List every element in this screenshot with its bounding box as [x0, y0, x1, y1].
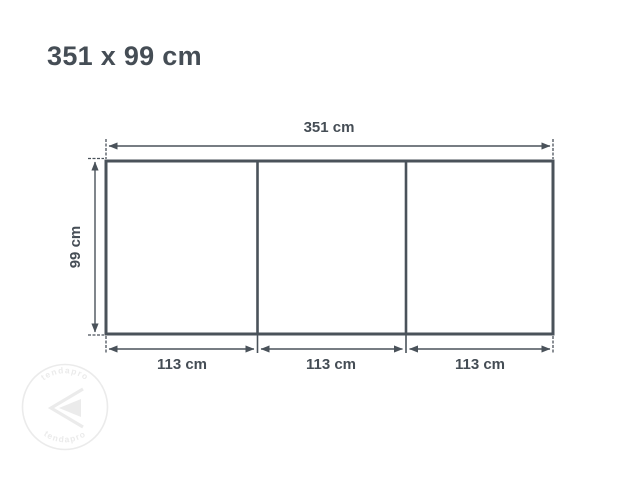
panel-1-dimension-label: 113 cm	[157, 356, 207, 373]
height-dimension-label: 99 cm	[67, 226, 84, 269]
page-canvas: 351 x 99 cm tendapro tendapro	[0, 0, 639, 479]
total-width-dimension-label: 351 cm	[304, 119, 355, 136]
watermark-text-bottom: tendapro	[42, 428, 88, 444]
dimension-diagram: tendapro tendapro 351 cm 99 cm	[0, 0, 639, 479]
panel-3-dimension-label: 113 cm	[455, 356, 505, 373]
panel-2-dimension-label: 113 cm	[306, 356, 356, 373]
watermark-logo: tendapro tendapro	[23, 365, 108, 450]
panel-outline	[106, 161, 553, 334]
